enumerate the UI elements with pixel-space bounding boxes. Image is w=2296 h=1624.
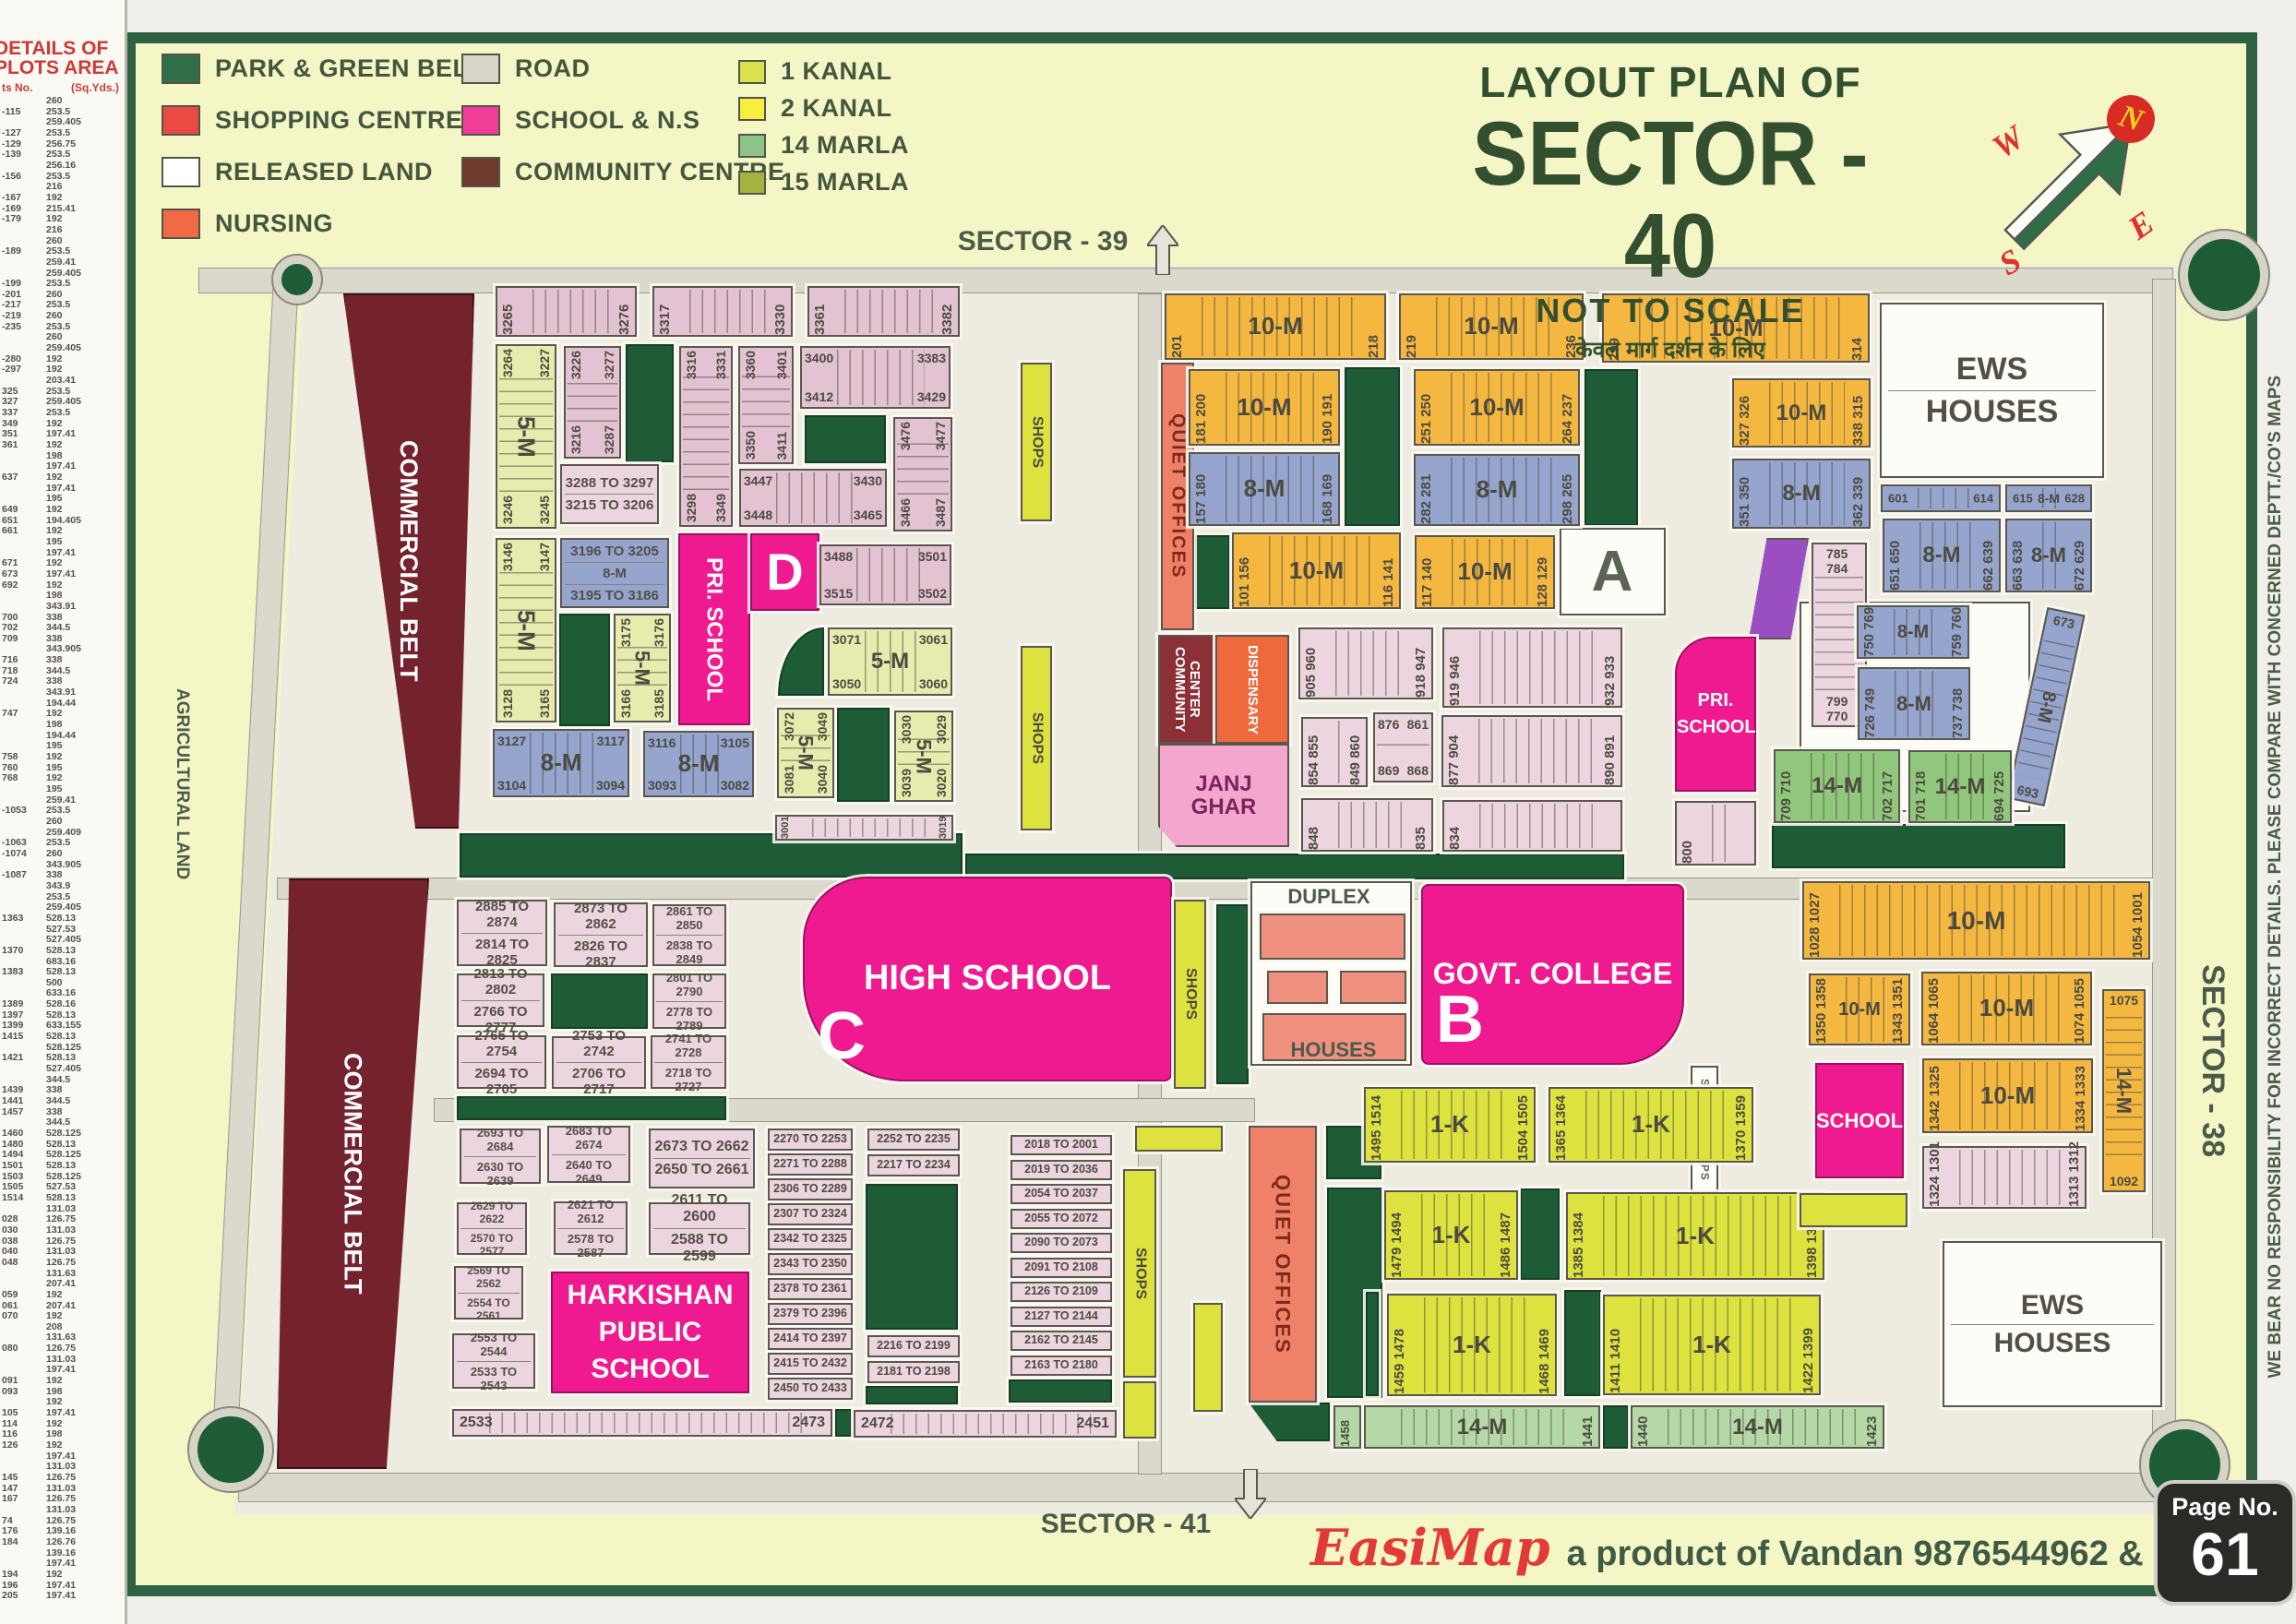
plot-range-line: 2650 TO 2661 <box>653 1158 749 1178</box>
plot-range-lines: 3196 TO 32058-M3195 TO 3186 <box>565 543 664 603</box>
block-8m-750: 8-M750 769759 760 <box>1857 605 1969 659</box>
plot-area: 192 <box>46 1290 125 1301</box>
plot-3476-3487: 3476347734663487 <box>893 417 952 531</box>
sidebar-row: 259.41 <box>0 257 125 269</box>
plot-3360-3411: 3360340133503411 <box>738 346 794 464</box>
agricultural-land-label: AGRICULTURAL LAND <box>161 674 202 895</box>
plot-range-line: 2753 TO 2742 <box>556 1028 641 1059</box>
plot-range-line: HOUSES <box>1888 390 2096 430</box>
plot-label: 3477 <box>933 422 948 450</box>
plot-area: 192 <box>46 1570 125 1581</box>
plot-no <box>0 257 46 269</box>
plot-label: 3147 <box>537 543 552 571</box>
plot-no: 1501 <box>0 1161 46 1172</box>
plot-label: B <box>1436 982 1484 1057</box>
plot-label: SHOPS <box>1182 968 1198 1020</box>
sidebar-row: 131.03 <box>0 1505 125 1516</box>
plot-label: 10-M <box>1979 996 2034 1021</box>
plot-no <box>0 591 46 602</box>
pri-school-d-letter: D <box>750 533 819 611</box>
plot-range-lines: EWSHOUSES <box>1951 1290 2154 1359</box>
plot-no <box>0 537 46 548</box>
plot-label: 861 <box>1407 717 1429 732</box>
plot-range-line: 2838 TO 2849 <box>656 935 722 966</box>
plot-label: 709 710 <box>1778 751 1794 821</box>
plot-area: 195 <box>46 537 125 548</box>
plot-no: 709 <box>0 634 46 645</box>
sidebar-row: -1074260 <box>0 849 125 860</box>
plot-no: 091 <box>0 1376 46 1387</box>
plot-range-lines: 2629 TO 26222570 TO 2577 <box>460 1200 523 1258</box>
sidebar-row: 145126.75 <box>0 1473 125 1484</box>
page-number-badge: Page No. 61 <box>2158 1484 2292 1602</box>
plot-no <box>0 720 46 731</box>
park-9 <box>1584 369 1638 526</box>
plot-label: 2472 <box>861 1415 894 1432</box>
plot-label: C <box>818 998 866 1074</box>
plot-label: D <box>766 545 803 600</box>
plot-label: SHOPS <box>1029 416 1045 468</box>
plot-854-860: 854 855849 860 <box>1301 717 1368 787</box>
range-2885: 2885 TO 28742814 TO 2825 <box>457 900 547 966</box>
plot-no: -297 <box>0 364 46 376</box>
plot-3001-3019: 30013019 <box>775 815 953 841</box>
plot-label: 3361 <box>812 288 828 335</box>
plot-no <box>0 602 46 613</box>
plot-label: HOUSES <box>1291 1039 1377 1060</box>
sector-39-label: SECTOR - 39 <box>914 223 1172 260</box>
layout-plan-page: DETAILS OF PLOTS AREA ts No. (Sq.Yds.) 2… <box>0 0 2296 1624</box>
plot-no: 194 <box>0 1570 46 1581</box>
plot-label: 327 326 <box>1737 380 1752 446</box>
plot-range-lines: 2861 TO 28502838 TO 2849 <box>656 904 722 966</box>
plot-no: 145 <box>0 1473 46 1484</box>
block-14m-701: 14-M701 718694 725 <box>1908 750 2012 823</box>
plot-label: 1313 1312 <box>2066 1148 2082 1207</box>
footer: EasiMap a product of Vandan 9876544962 &… <box>1310 1518 2193 1577</box>
range-col-c-1: 2019 TO 2036 <box>1010 1160 1112 1180</box>
plot-range-lines: 2885 TO 28742814 TO 2825 <box>461 899 543 968</box>
plot-label: 10-M <box>1289 558 1344 583</box>
plot-label: 2307 TO 2324 <box>773 1208 847 1220</box>
range-2683: 2683 TO 26742640 TO 2649 <box>547 1126 630 1183</box>
plot-label: 672 629 <box>2072 520 2087 591</box>
plot-label: 2378 TO 2361 <box>773 1283 847 1295</box>
plot-label: 3502 <box>918 586 947 601</box>
plot-area: 197.41 <box>46 1591 125 1602</box>
plot-label: 3071 <box>832 632 861 647</box>
plot-label: 1422 1399 <box>1800 1296 1816 1393</box>
plot-label: 3360 <box>743 351 758 379</box>
range-col-a-2: 2306 TO 2289 <box>768 1178 853 1200</box>
plot-label: 1370 1359 <box>1733 1089 1749 1161</box>
plot-label: 1054 1001 <box>2130 883 2146 958</box>
plot-no: -179 <box>0 214 46 225</box>
sidebar-row: 184126.76 <box>0 1537 125 1548</box>
range-2753: 2753 TO 27422706 TO 2717 <box>552 1036 646 1089</box>
plot-area: 260 <box>46 817 125 828</box>
plot-label: 1-K <box>1692 1332 1731 1357</box>
plot-label: 2270 TO 2253 <box>773 1133 847 1145</box>
shops-bottom: SHOPS <box>1123 1169 1156 1378</box>
plot-range-line: 3196 TO 3205 <box>565 543 664 559</box>
plot-label: 663 638 <box>2010 520 2026 591</box>
plot-label: 3165 <box>537 689 552 718</box>
plot-no <box>0 925 46 936</box>
range-2553: 2553 TO 25442533 TO 2543 <box>452 1333 535 1389</box>
plot-area: 192 <box>46 1440 125 1451</box>
legend-label: NURSING <box>215 209 333 238</box>
legend-item: 15 MARLA <box>738 168 909 197</box>
plot-label: 2473 <box>792 1415 825 1431</box>
range-col-a-7: 2379 TO 2396 <box>768 1303 853 1325</box>
plot-label: COMMERCIAL BELT <box>340 1053 365 1294</box>
plot-label: 2414 TO 2397 <box>773 1332 847 1344</box>
released-land-a: A <box>1560 528 1666 615</box>
plot-label: 14-M <box>2113 1068 2135 1114</box>
plot-label: 1479 1494 <box>1389 1192 1405 1278</box>
plot-label: 890 891 <box>1602 717 1618 785</box>
plot-label: 2252 TO 2235 <box>877 1133 951 1145</box>
sidebar-row: 527.405 <box>0 1064 125 1075</box>
plot-area: 259.405 <box>46 343 125 354</box>
plot-area: 131.03 <box>46 1505 125 1516</box>
plot-range-lines: 2741 TO 27282718 TO 2727 <box>654 1032 722 1093</box>
plot-range-line: EWS <box>1951 1290 2154 1321</box>
plot-range-line: SCHOOL <box>1677 714 1754 738</box>
plot-label: SHOPS <box>1132 1248 1148 1299</box>
sidebar-row: 1370528.13 <box>0 946 125 957</box>
plot-range-lines: 2553 TO 25442533 TO 2543 <box>457 1331 532 1392</box>
plot-range-lines: 2765 TO 27542694 TO 2705 <box>461 1028 542 1097</box>
plot-label: 351 350 <box>1737 460 1752 527</box>
plot-no: -189 <box>0 246 46 257</box>
plot-no: -156 <box>0 172 46 183</box>
range-col-a-4: 2342 TO 2325 <box>768 1228 853 1250</box>
block-5m-e: 5-M3072304930813040 <box>777 708 834 798</box>
plot-label: 877 904 <box>1446 717 1462 785</box>
plot-label: 5-M <box>513 416 538 458</box>
strip-601-614: 601614 <box>1881 484 2001 512</box>
plot-no: 361 <box>0 440 46 451</box>
plot-label: 1324 1301 <box>1927 1148 1943 1207</box>
plot-label: 2090 TO 2073 <box>1024 1236 1098 1248</box>
plot-label: 694 725 <box>1991 752 2007 821</box>
govt-college: GOVT. COLLEGEB <box>1421 884 1684 1065</box>
plot-label: 2343 TO 2350 <box>773 1258 847 1270</box>
plot-no <box>0 343 46 354</box>
plot-label: 8-M <box>1782 482 1820 505</box>
range-col-a-5: 2343 TO 2350 <box>768 1253 853 1275</box>
legend-item: COMMUNITY CENTRE <box>461 157 785 187</box>
plot-range-line: 2706 TO 2717 <box>556 1062 641 1097</box>
plot-label: 1468 1469 <box>1537 1296 1552 1394</box>
plot-label: 601 <box>1888 492 1908 506</box>
plot-label: 3049 <box>815 712 830 741</box>
sidebar-row: 1460528.125 <box>0 1128 125 1140</box>
plot-no <box>0 376 46 387</box>
plot-label: 218 <box>1366 295 1381 358</box>
plot-range-lines: 2621 TO 26122578 TO 2587 <box>557 1198 623 1260</box>
plot-label: 2018 TO 2001 <box>1024 1139 1098 1151</box>
plot-label: 8-M <box>2038 492 2060 506</box>
plot-label: 1334 1333 <box>2073 1060 2088 1131</box>
plot-no: 758 <box>0 752 46 763</box>
range-col-a-3: 2307 TO 2324 <box>768 1203 853 1225</box>
plot-label: 673 <box>2051 613 2075 632</box>
plot-label: 3515 <box>824 586 853 601</box>
plot-label: 3287 <box>602 425 616 454</box>
plot-range-line: 2588 TO 2599 <box>653 1228 746 1265</box>
plot-label: 8-M <box>2031 544 2066 566</box>
plot-label: 201 <box>1169 295 1185 358</box>
plot-label: 848 <box>1306 800 1321 850</box>
plot-no: -235 <box>0 322 46 333</box>
legend-label: SCHOOL & N.S <box>515 106 700 135</box>
plot-no <box>0 225 46 236</box>
plot-label: 3216 <box>568 425 583 454</box>
plot-label: 3488 <box>824 549 853 564</box>
sidebar-row: 126192 <box>0 1440 125 1451</box>
plot-range-lines: 2569 TO 25622554 TO 2561 <box>458 1264 520 1322</box>
range-col-c-6: 2126 TO 2109 <box>1010 1282 1112 1302</box>
strip-834: 834 <box>1442 800 1622 852</box>
plot-label: 3030 <box>899 715 914 744</box>
shops-mid: SHOPS <box>1021 646 1052 830</box>
plot-area: 126.75 <box>46 1258 125 1269</box>
plot-no <box>0 881 46 892</box>
block-14m-709: 14-M709 710702 717 <box>1774 749 1900 823</box>
plot-area: 260 <box>46 96 125 107</box>
park-2 <box>805 415 886 463</box>
janj-ghar: JANJ GHAR <box>1158 744 1289 847</box>
plot-3400-3429: 3400338334123429 <box>800 346 951 409</box>
park-12 <box>551 973 648 1029</box>
park-15 <box>866 1386 958 1404</box>
plot-no: -1053 <box>0 806 46 817</box>
plot-label: 2216 TO 2199 <box>877 1340 951 1352</box>
plot-label: 5-M <box>871 650 909 673</box>
plot-label: 3081 <box>782 765 796 794</box>
plot-label: 1075 <box>2110 993 2138 1008</box>
legend-swatch-icon <box>161 105 200 136</box>
plot-no: 184 <box>0 1537 46 1548</box>
range-col-a-0: 2270 TO 2253 <box>768 1128 853 1151</box>
plot-label: 905 960 <box>1303 629 1319 698</box>
range-col-a-9: 2415 TO 2432 <box>768 1353 853 1375</box>
block-k1-below-school <box>1800 1193 1907 1227</box>
plot-label: 750 769 <box>1861 607 1877 657</box>
plot-label: SCHOOL <box>1816 1110 1903 1131</box>
plot-label: 298 265 <box>1560 456 1575 524</box>
range-col-a-6: 2378 TO 2361 <box>768 1278 853 1300</box>
plot-label: 2450 TO 2433 <box>773 1382 847 1394</box>
plot-range-line: 2553 TO 2544 <box>457 1331 532 1358</box>
plot-label: 190 191 <box>1320 371 1335 444</box>
plot-label: 3082 <box>721 778 749 793</box>
plot-3316-3349: 3316333132983349 <box>679 346 733 527</box>
plot-label: 1495 1514 <box>1369 1089 1384 1161</box>
plot-label: 1423 <box>1864 1407 1880 1447</box>
plot-label: 1-K <box>1676 1224 1715 1248</box>
plot-area: 126.76 <box>46 1537 125 1548</box>
sidebar-row: 260 <box>0 817 125 828</box>
sidebar-row: 361192 <box>0 440 125 451</box>
plot-3265-3276: 32653276 <box>496 286 637 337</box>
plot-no: 070 <box>0 1311 46 1322</box>
sidebar-row: 195 <box>0 537 125 548</box>
range-col-b-3: 2181 TO 2198 <box>867 1361 960 1383</box>
plot-label: 8-M <box>1244 476 1286 501</box>
park-14 <box>866 1184 958 1330</box>
plot-label: 1486 1487 <box>1498 1192 1513 1278</box>
plot-no <box>0 332 46 343</box>
plot-range-line: 2673 TO 2662 <box>653 1139 749 1155</box>
compass-east-label: E <box>2121 203 2161 247</box>
shops-bottom-foot <box>1123 1381 1156 1439</box>
plot-no: 105 <box>0 1408 46 1419</box>
plot-label: 3020 <box>934 769 949 797</box>
range-2629: 2629 TO 26222570 TO 2577 <box>457 1202 527 1255</box>
plot-area: 260 <box>46 849 125 860</box>
plot-area: 216 <box>46 225 125 236</box>
plot-no: 673 <box>0 569 46 580</box>
plot-label: 918 947 <box>1413 629 1429 698</box>
ews-houses-bottom: EWSHOUSES <box>1943 1241 2162 1407</box>
sidebar-row: 343.9 <box>0 881 125 892</box>
park-11 <box>1772 824 2065 868</box>
block-10m-101: 10-M101 156116 141 <box>1232 532 1401 609</box>
plot-area: 343.91 <box>46 602 125 613</box>
sidebar-row: 030131.03 <box>0 1225 125 1236</box>
sidebar-row: -167192 <box>0 193 125 204</box>
plot-label: 854 855 <box>1306 719 1321 785</box>
plot-no <box>0 1064 46 1075</box>
plot-area: 192 <box>46 193 125 204</box>
plot-no <box>0 1322 46 1333</box>
plot-label: 3050 <box>832 676 861 691</box>
plot-area: 528.13 <box>46 1161 125 1172</box>
plot-range-line: 2814 TO 2825 <box>461 933 543 968</box>
range-2861: 2861 TO 28502838 TO 2849 <box>652 904 726 966</box>
legend-swatch-icon <box>161 54 200 84</box>
sidebar-row: 1501528.13 <box>0 1161 125 1172</box>
plot-range-line: 2630 TO 2639 <box>464 1156 537 1188</box>
range-col-b-1: 2217 TO 2234 <box>867 1154 960 1176</box>
plot-no: -167 <box>0 193 46 204</box>
plot-no: 093 <box>0 1387 46 1398</box>
plot-area: 131.03 <box>46 1225 125 1236</box>
plot-label: 932 933 <box>1602 629 1618 706</box>
plot-label: 362 339 <box>1850 460 1866 527</box>
shops-top: SHOPS <box>1021 363 1052 521</box>
plot-label: 14-M <box>1935 775 1986 798</box>
range-col-a-1: 2271 TO 2288 <box>768 1153 853 1176</box>
plot-label: QUIET OFFICES <box>1272 1175 1293 1355</box>
plot-no <box>0 817 46 828</box>
block-1k-1459: 1-K1459 14781468 1469 <box>1387 1294 1557 1396</box>
legend-swatch-icon <box>461 157 500 187</box>
plot-no: -127 <box>0 128 46 139</box>
title-line1: LAYOUT PLAN OF <box>1393 57 1947 107</box>
block-8m-726: 8-M726 749737 738 <box>1858 667 1970 740</box>
sector-38-label: SECTOR - 38 <box>2180 923 2244 1200</box>
plot-label: 282 281 <box>1418 456 1434 524</box>
sidebar-row: 216 <box>0 225 125 236</box>
plot-no: 637 <box>0 472 46 484</box>
range-2741: 2741 TO 27282718 TO 2727 <box>651 1035 726 1089</box>
park-5 <box>837 708 890 802</box>
plot-no: 747 <box>0 709 46 720</box>
sidebar-row: 758192 <box>0 752 125 763</box>
plot-label: 14-M <box>1732 1415 1783 1439</box>
legend-swatch-icon <box>461 54 500 84</box>
footer-product-text: a product of Vandan 9876544962 & 63 <box>1567 1534 2193 1574</box>
block-1k-1495: 1-K1495 15141504 1505 <box>1364 1087 1536 1163</box>
sector-41-label: SECTOR - 41 <box>1015 1508 1237 1541</box>
quiet-offices-bottom: QUIET OFFICES <box>1249 1126 1317 1403</box>
strip-848-835: 848835 <box>1301 798 1433 852</box>
plot-area: 192 <box>46 752 125 763</box>
sidebar-row: 256.16 <box>0 161 125 172</box>
plot-no: 205 <box>0 1591 46 1602</box>
sidebar-row: 649192 <box>0 505 125 516</box>
plot-877-891: 877 904890 891 <box>1441 715 1622 787</box>
range-2693: 2693 TO 26842630 TO 2639 <box>460 1128 541 1184</box>
strip-14m-left: 14-M1441 <box>1364 1405 1600 1449</box>
plot-no: 768 <box>0 773 46 784</box>
plot-label: 737 738 <box>1950 669 1966 738</box>
plot-label: 2342 TO 2325 <box>773 1233 847 1245</box>
plot-label: 1411 1410 <box>1608 1296 1623 1393</box>
plot-label: 1074 1055 <box>2072 973 2087 1044</box>
plot-no: 649 <box>0 505 46 516</box>
plot-label: 726 749 <box>1862 669 1878 738</box>
plot-label: 3061 <box>919 632 948 647</box>
plot-no: 080 <box>0 1343 46 1355</box>
plot-range-line: 2693 TO 2684 <box>464 1126 537 1153</box>
block-8m-351: 8-M351 350362 339 <box>1732 459 1871 529</box>
plot-range-line: 2640 TO 2649 <box>552 1154 627 1186</box>
plot-range-lines: 3288 TO 32973215 TO 3206 <box>565 475 654 513</box>
plot-label: 2163 TO 2180 <box>1024 1359 1098 1371</box>
park-19 <box>1520 1188 1560 1280</box>
plot-no: 1457 <box>0 1107 46 1118</box>
plot-3317-3330: 33173330 <box>652 286 793 337</box>
block-8m-b: 8-M3116310530933082 <box>643 731 754 797</box>
plot-label: 3019 <box>938 817 949 839</box>
plot-label: 3487 <box>933 498 948 527</box>
plot-label: 5-M <box>513 610 538 651</box>
plot-label: 614 <box>1973 492 1993 506</box>
plot-no <box>0 892 46 903</box>
plot-no: 1441 <box>0 1096 46 1107</box>
block-1k-1385: 1-K1385 13841398 1371 <box>1566 1192 1824 1280</box>
sidebar-row: 673197.41 <box>0 569 125 580</box>
block-8m-651: 8-M651 650662 639 <box>1883 519 2001 592</box>
plot-label: 10-M <box>1776 401 1827 424</box>
plot-label: 3127 <box>497 734 526 748</box>
plot-label: 2091 TO 2108 <box>1024 1261 1098 1273</box>
compass-icon: N W S E <box>1993 88 2169 300</box>
plot-label: 868 <box>1407 763 1429 778</box>
plot-no <box>0 1355 46 1366</box>
school-small: SCHOOL <box>1815 1063 1904 1178</box>
plot-label: 3411 <box>774 432 789 460</box>
plot-label: 1504 1505 <box>1515 1089 1531 1161</box>
houses-label: HOUSES <box>1274 1037 1393 1063</box>
road-bottom <box>238 1473 2185 1502</box>
